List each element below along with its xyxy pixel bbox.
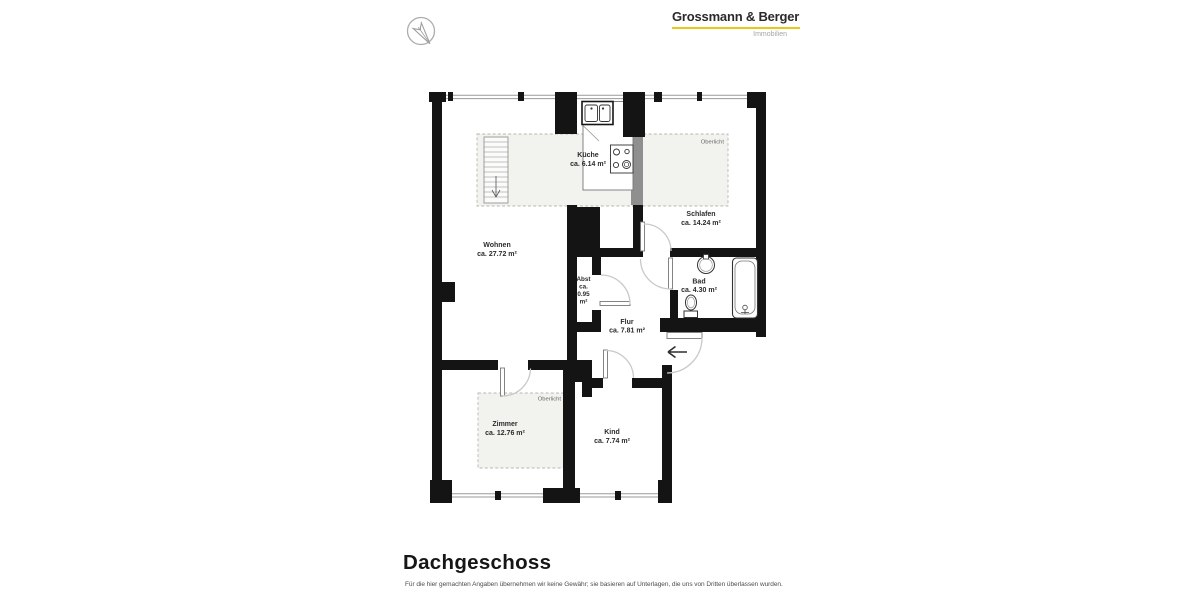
- brand-logo: Grossmann & Berger Immobilien: [672, 9, 800, 38]
- room-label-wohnen-name: Wohnen: [483, 242, 510, 249]
- disclaimer-text: Für die hier gemachten Angaben übernehme…: [405, 581, 783, 588]
- room-label-kind-name: Kind: [604, 429, 620, 436]
- room-label-wohnen-area: ca. 27.72 m²: [477, 251, 517, 258]
- skylight-label-bottom: Oberlicht: [538, 397, 562, 403]
- room-label-schlafen-area: ca. 14.24 m²: [681, 220, 721, 227]
- door-kind: [604, 350, 634, 378]
- door-bad: [641, 258, 673, 289]
- page-title: Dachgeschoss: [403, 551, 551, 575]
- compass-letter: N: [418, 26, 421, 31]
- room-label-kueche-area: ca. 6.14 m²: [570, 161, 606, 168]
- room-label-flur-area: ca. 7.81 m²: [609, 328, 645, 335]
- room-label-kind-area: ca. 7.74 m²: [594, 438, 630, 445]
- staircase: [484, 137, 508, 203]
- toilet-icon: [684, 295, 698, 318]
- brand-wordmark: Grossmann & Berger: [672, 9, 800, 29]
- floor-plan: Oberlicht Oberlicht: [405, 85, 785, 510]
- door-abst: [600, 275, 630, 306]
- brand-division-label: Immobilien: [672, 31, 800, 38]
- room-label-abst-name: Abst: [577, 276, 592, 283]
- room-label-abst-line3: 0.95: [577, 291, 590, 298]
- kitchen-stove: [611, 145, 634, 173]
- room-label-kueche-name: Küche: [577, 152, 599, 159]
- kitchen-sink: [582, 102, 613, 125]
- room-label-flur-name: Flur: [620, 319, 633, 326]
- room-label-bad-area: ca. 4.30 m²: [681, 287, 717, 294]
- room-label-abst-line2: ca.: [579, 284, 588, 291]
- door-zimmer: [501, 368, 531, 396]
- room-label-zimmer-area: ca. 12.76 m²: [485, 430, 525, 437]
- entrance-arrow-icon: [668, 347, 687, 358]
- door-schlafen: [641, 222, 672, 251]
- room-label-zimmer-name: Zimmer: [492, 421, 518, 428]
- room-label-bad-name: Bad: [692, 279, 705, 286]
- room-label-schlafen-name: Schlafen: [686, 211, 715, 218]
- compass-north-icon: N: [401, 10, 441, 52]
- room-label-abst-line4: m²: [580, 299, 588, 306]
- skylight-label-top: Oberlicht: [701, 140, 725, 146]
- washbasin-icon: [698, 255, 715, 274]
- bathtub-icon: [733, 258, 758, 318]
